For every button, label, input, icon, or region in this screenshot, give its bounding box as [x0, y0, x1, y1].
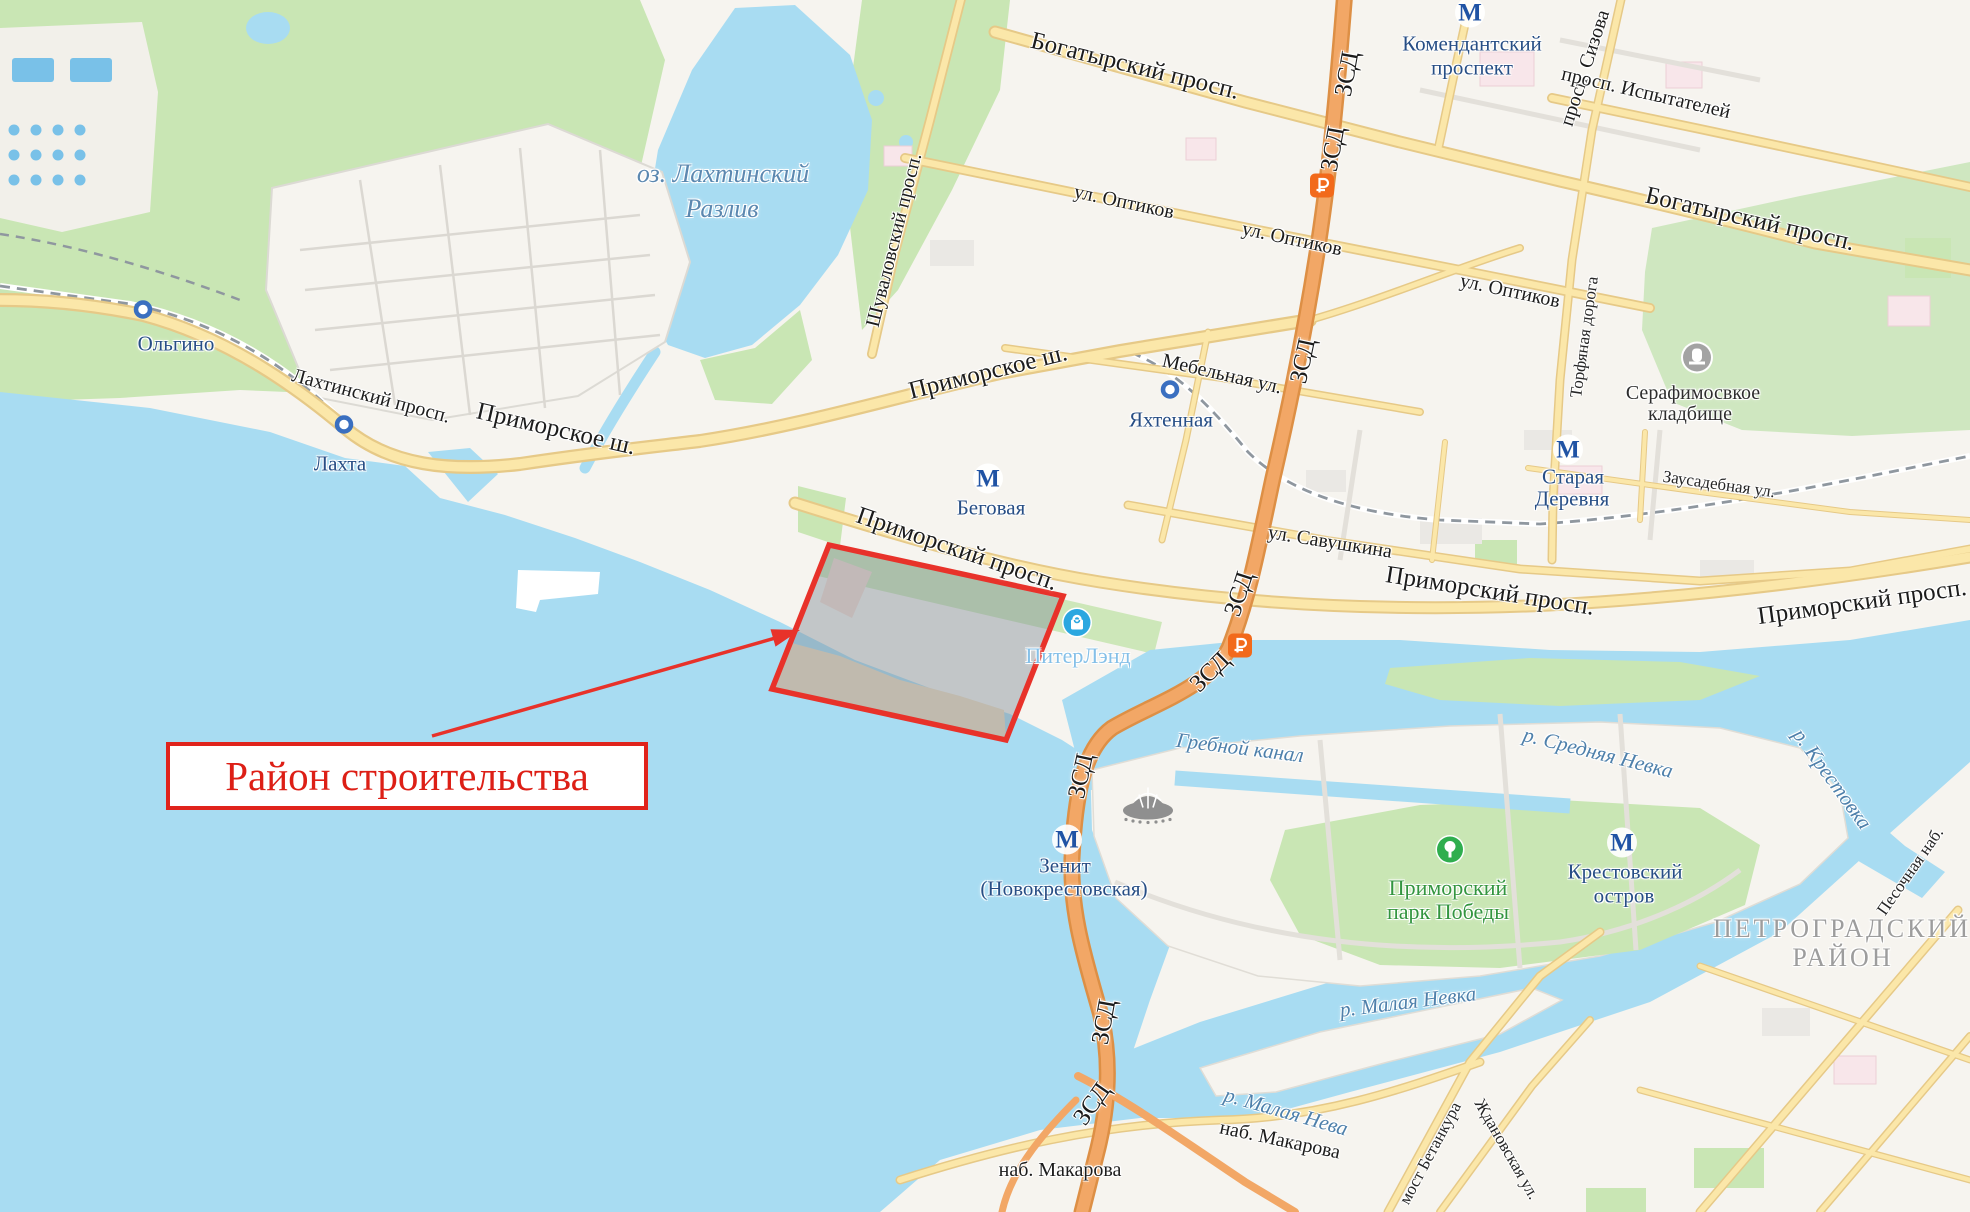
map-canvas[interactable]: Богатырский просп.Богатырский просп.Коме…	[0, 0, 1970, 1212]
rail-icon[interactable]	[131, 298, 155, 327]
metro-icon[interactable]: М	[1050, 823, 1084, 862]
tree-icon[interactable]	[1434, 834, 1466, 871]
toll-icon	[1309, 173, 1335, 204]
metro-icon[interactable]: М	[1551, 433, 1585, 472]
cemetery-icon[interactable]	[1679, 340, 1715, 381]
metro-icon[interactable]: М	[971, 462, 1005, 501]
svg-text:М: М	[1055, 827, 1079, 854]
construction-area-label: Район строительства	[166, 742, 648, 810]
rail-icon[interactable]	[332, 413, 356, 442]
map-icons-layer: МММММ	[0, 0, 1970, 1212]
metro-icon[interactable]: М	[1453, 0, 1487, 35]
svg-text:М: М	[1610, 830, 1634, 857]
svg-text:М: М	[1556, 437, 1580, 464]
svg-text:М: М	[976, 466, 1000, 493]
stadium-icon	[1116, 781, 1180, 830]
svg-text:М: М	[1458, 0, 1482, 27]
toll-icon	[1227, 633, 1253, 664]
metro-icon[interactable]: М	[1605, 826, 1639, 865]
rail-icon[interactable]	[1158, 378, 1182, 407]
mall-icon[interactable]	[1061, 607, 1093, 644]
